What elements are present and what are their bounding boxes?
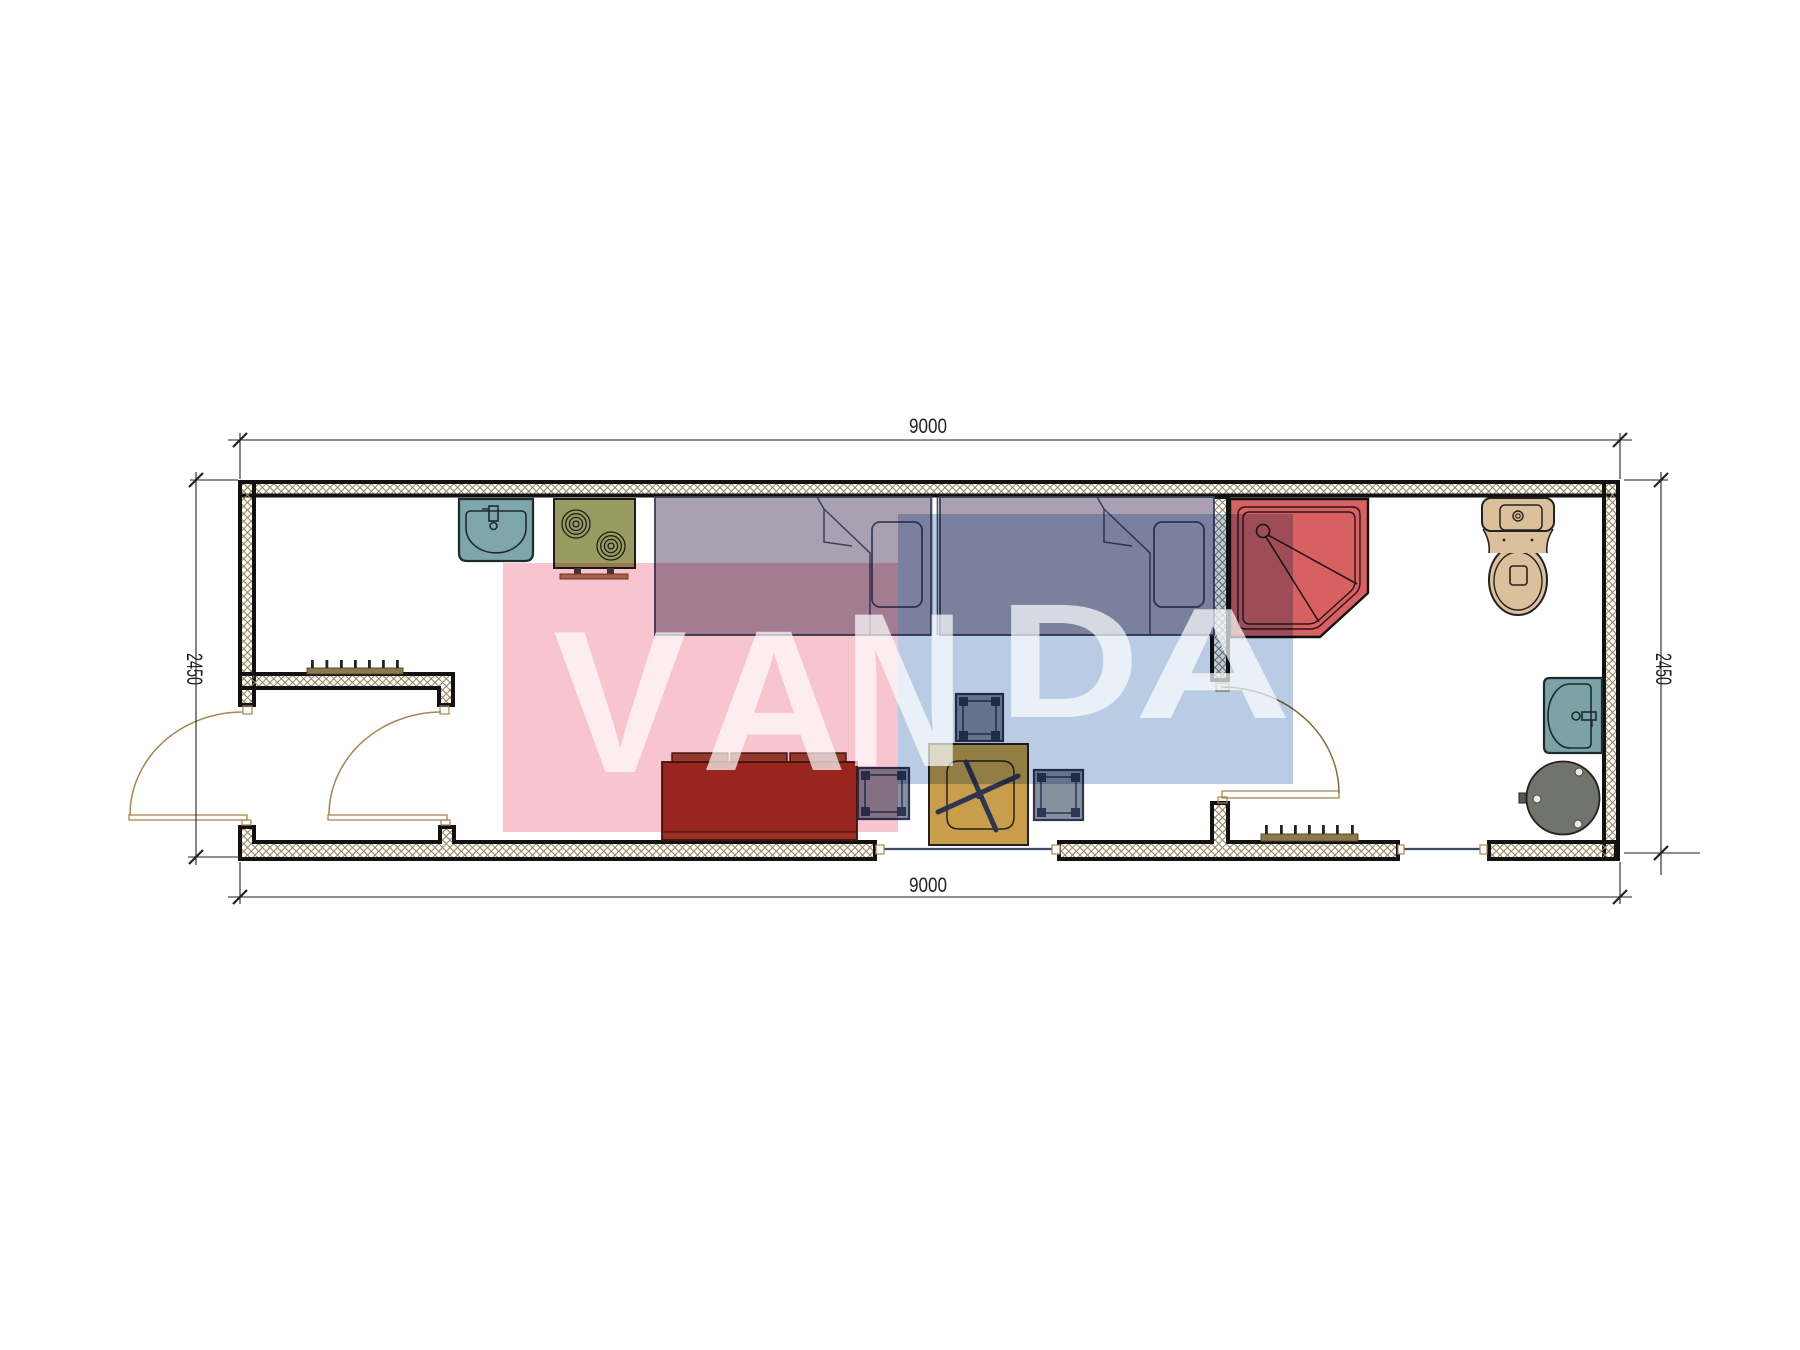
- svg-text:N: N: [844, 567, 964, 813]
- svg-text:2450: 2450: [182, 653, 207, 685]
- svg-text:A: A: [1134, 576, 1292, 752]
- svg-text:2450: 2450: [1651, 653, 1676, 685]
- svg-text:V: V: [553, 589, 687, 816]
- svg-text:9000: 9000: [909, 874, 947, 897]
- svg-text:D: D: [998, 569, 1140, 752]
- svg-text:A: A: [701, 588, 847, 813]
- svg-text:9000: 9000: [909, 415, 947, 438]
